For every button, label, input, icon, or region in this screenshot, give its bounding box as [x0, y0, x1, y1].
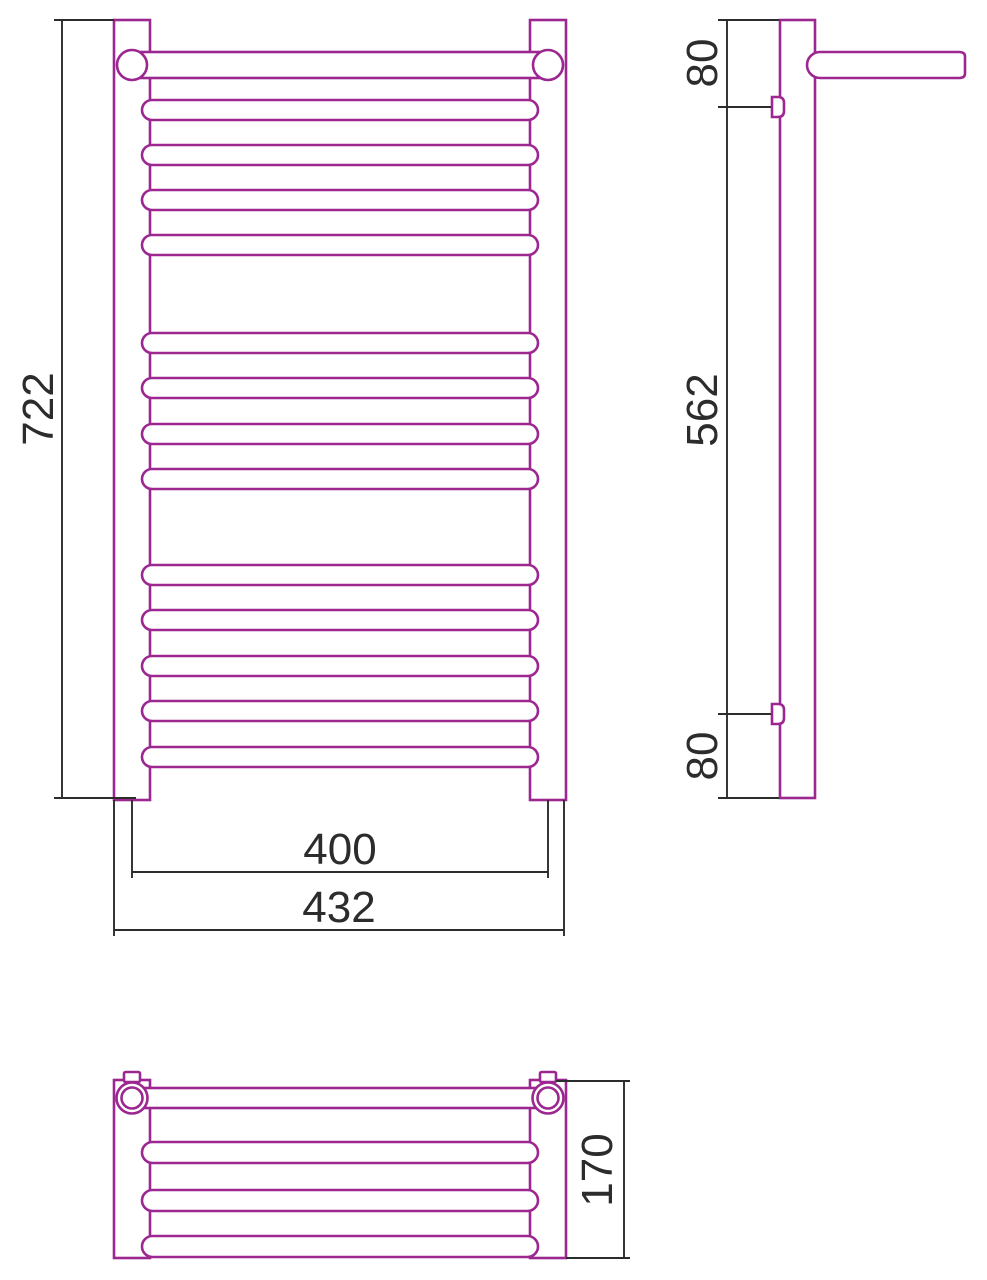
side-dimensions: 80 562 80 [678, 20, 779, 798]
side-dimension-lines [718, 20, 779, 798]
front-width-label: 432 [302, 883, 375, 932]
front-height-label: 722 [14, 372, 63, 445]
side-bracket-span-label: 562 [678, 373, 727, 446]
plan-shelf-bar [132, 1088, 548, 1108]
rung [142, 469, 538, 489]
front-view [114, 20, 566, 800]
side-lower-bracket [772, 704, 784, 724]
side-view [772, 20, 965, 798]
technical-drawing: 722 400 432 80 562 80 [0, 0, 987, 1280]
side-top-offset-label: 80 [678, 39, 727, 88]
rung [142, 424, 538, 444]
rung [142, 701, 538, 721]
rung [142, 333, 538, 353]
rung [142, 610, 538, 630]
side-post [780, 20, 815, 798]
rung [142, 235, 538, 255]
plan-shelf-bar [142, 1142, 538, 1163]
rung [142, 378, 538, 398]
plan-left-fitting-inner [122, 1088, 143, 1109]
rung [142, 747, 538, 767]
front-railspan-label: 400 [303, 825, 376, 874]
rung [142, 190, 538, 210]
plan-right-fitting-inner [538, 1088, 559, 1109]
front-height-dimension-lines [54, 20, 136, 798]
front-shelf-bar [132, 52, 548, 78]
rung [142, 565, 538, 585]
front-left-fitting [117, 50, 147, 80]
front-right-fitting [533, 50, 563, 80]
top-view [114, 1072, 566, 1258]
plan-left-bracket-stub [124, 1072, 140, 1082]
drawing-canvas: 722 400 432 80 562 80 [0, 0, 987, 1280]
front-left-post [114, 20, 150, 800]
side-shelf-bar [807, 52, 965, 78]
plan-shelf-bar [142, 1190, 538, 1211]
rung [142, 145, 538, 165]
side-bottom-offset-label: 80 [678, 732, 727, 781]
rung [142, 100, 538, 120]
side-upper-bracket [772, 97, 784, 117]
plan-shelf-bar [142, 1236, 538, 1257]
front-right-post [530, 20, 566, 800]
plan-depth-label: 170 [573, 1133, 622, 1206]
rung [142, 656, 538, 676]
plan-right-bracket-stub [540, 1072, 556, 1082]
